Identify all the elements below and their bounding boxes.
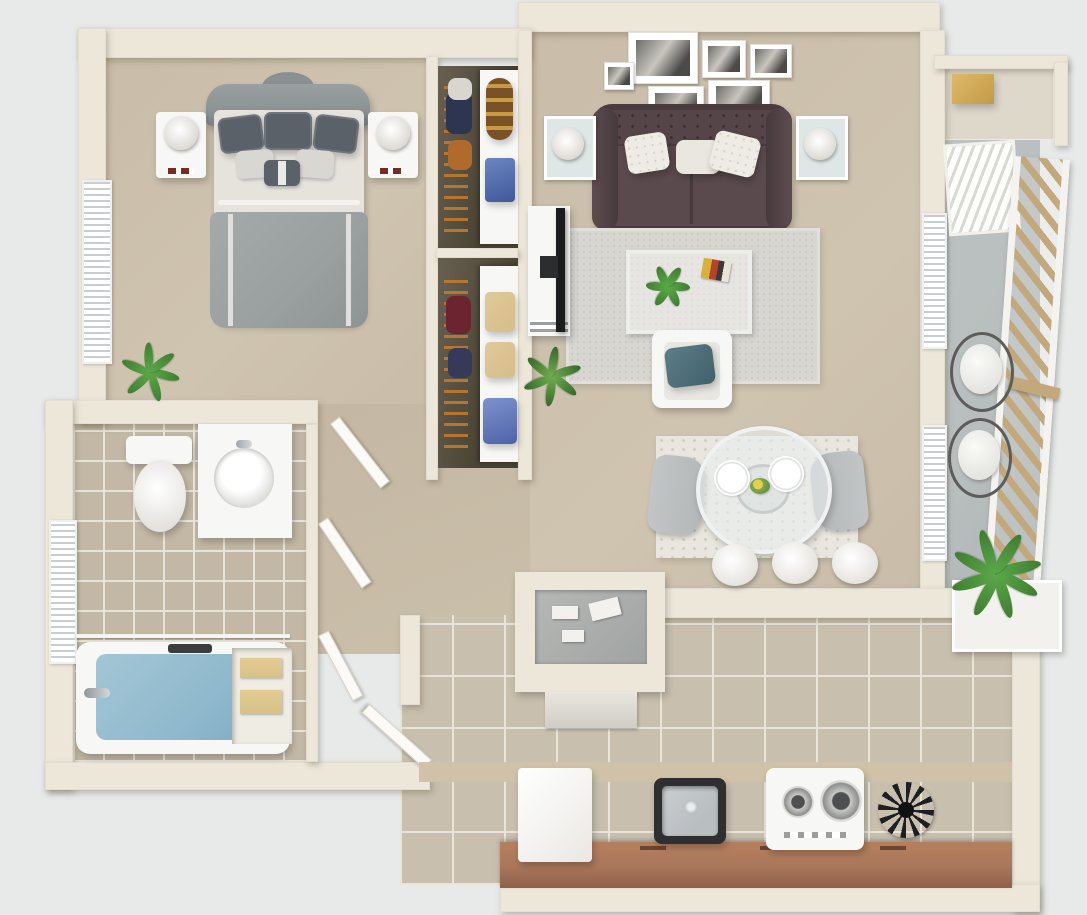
- bed-pillow-dark-right: [312, 113, 360, 154]
- toilet-bowl: [134, 460, 186, 532]
- bed-duvet: [210, 212, 368, 328]
- bed-fold-line: [218, 200, 360, 205]
- stove-controls: [784, 832, 848, 838]
- bed-pillow-light-right: [295, 149, 335, 180]
- wall-closet-mid: [436, 248, 518, 258]
- tub-shampoo-shelf: [168, 644, 212, 653]
- folded-jeans: [485, 158, 515, 202]
- nightstand-right-drawer-pulls: [380, 168, 406, 174]
- sofa-pillow-left: [623, 131, 670, 175]
- closet-top-clothes-white: [448, 78, 472, 100]
- armchair-pillow: [664, 343, 717, 389]
- storage-box-2: [485, 342, 515, 378]
- living-lamp-right: [804, 128, 836, 160]
- shower-curtain-rod: [76, 634, 290, 638]
- coffee-table: [626, 250, 752, 334]
- wall-balcony-storage-right: [1054, 62, 1068, 146]
- bed-pillow-accent-band: [278, 161, 286, 185]
- floor-plan-3d: [0, 0, 1087, 915]
- wall-block-bottom: [45, 762, 430, 790]
- wall-kitchen-left: [400, 615, 420, 705]
- small-appliance-3: [562, 630, 584, 642]
- nightstand-left-drawer-pulls: [168, 168, 194, 174]
- closet-top-clothes-orange: [448, 140, 472, 170]
- peninsula-countertop: [535, 590, 647, 664]
- wall-bath-right: [306, 424, 318, 762]
- bedroom-window-blinds: [82, 180, 112, 364]
- living-lamp-left: [552, 128, 584, 160]
- wall-bedroom-closet-divider: [426, 56, 438, 480]
- plate-left: [714, 460, 750, 496]
- towels-stack-2: [240, 690, 282, 714]
- living-window-blinds: [922, 213, 947, 349]
- gallery-frame-3: [750, 44, 792, 78]
- bathroom-window-blinds: [49, 520, 77, 664]
- tv-mount: [540, 256, 558, 278]
- bed-duvet-stripe: [228, 214, 233, 326]
- dish-rack-hub: [898, 802, 914, 818]
- bed-duvet-stripe-right: [346, 214, 351, 326]
- plate-right: [768, 456, 804, 492]
- refrigerator: [518, 768, 592, 862]
- bar-stool-3: [832, 542, 878, 584]
- bar-stool-1: [712, 544, 758, 586]
- stove-burner-right: [820, 780, 862, 822]
- wire-chair-2-cushion: [958, 430, 1000, 480]
- duffel-bag: [486, 78, 513, 140]
- wall-top-living: [518, 2, 940, 32]
- vanity-sink: [214, 448, 274, 508]
- gallery-frame-2: [702, 40, 746, 78]
- vanity-faucet: [236, 440, 252, 448]
- bar-stool-2: [772, 542, 818, 584]
- wall-bath-top: [45, 400, 318, 424]
- gallery-frame-1: [628, 32, 698, 84]
- small-appliance-1: [552, 606, 578, 619]
- sofa-arm-right: [766, 108, 792, 230]
- gallery-frame-4: [604, 62, 634, 90]
- towels-stack-1: [240, 658, 282, 678]
- wall-kitchen-bottom: [500, 884, 1040, 912]
- closet-bottom-clothes-maroon: [446, 296, 471, 334]
- wall-top-bedroom: [78, 28, 530, 58]
- dishwasher-front: [545, 692, 637, 728]
- kitchen-faucet: [684, 800, 698, 814]
- wire-chair-1-cushion: [960, 344, 1002, 394]
- bed-pillow-dark-left: [217, 113, 265, 154]
- stove-burner-left: [782, 786, 814, 818]
- centerpiece-flowers: [750, 478, 770, 494]
- balcony-storage-box: [952, 74, 994, 104]
- storage-box-1: [485, 292, 515, 332]
- dining-window-blinds: [922, 425, 947, 561]
- folded-shirt: [483, 398, 517, 444]
- wall-balcony-storage-top: [934, 55, 1068, 69]
- tub-faucet: [84, 688, 110, 698]
- table-lamp-right: [376, 116, 410, 150]
- table-lamp-left: [164, 116, 198, 150]
- bed-pillow-dark-center: [264, 112, 312, 150]
- closet-bottom-clothes-navy: [448, 348, 472, 378]
